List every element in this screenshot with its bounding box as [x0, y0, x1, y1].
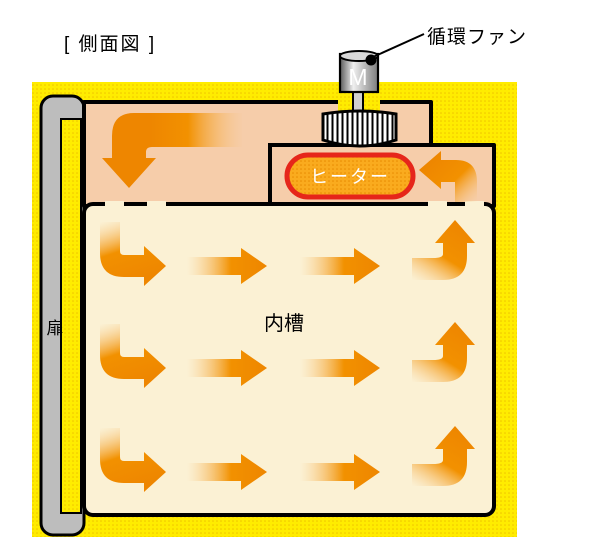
circulation-fan-label: 循環ファン	[427, 22, 527, 49]
fan-impeller	[323, 111, 396, 146]
door-inner-panel	[61, 119, 81, 513]
diagram-graphics: ヒーター M 内槽 扉	[0, 0, 600, 559]
side-view-diagram: ヒーター M 内槽 扉	[0, 0, 600, 559]
motor-label: M	[348, 64, 367, 90]
callout-line	[373, 34, 424, 57]
page-title: [ 側面図 ]	[64, 29, 156, 56]
heater-label: ヒーター	[310, 167, 390, 187]
door-label: 扉	[47, 319, 64, 338]
inner-chamber-label: 内槽	[264, 312, 304, 335]
